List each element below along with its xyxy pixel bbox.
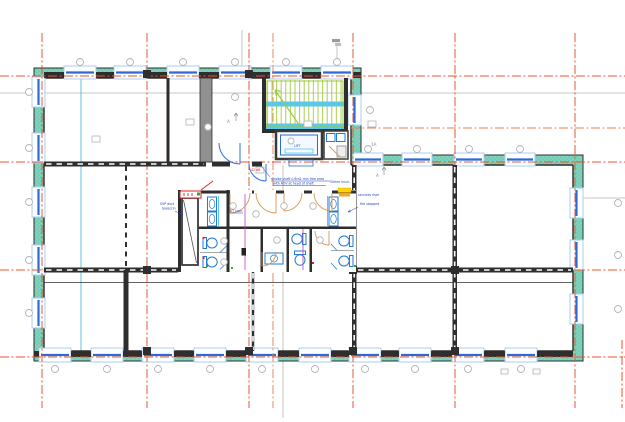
bubble [104,366,111,373]
section-marker-label: A [227,119,230,124]
toilet [339,256,353,267]
annotation-riser-1: services riser [358,193,380,197]
floor-plan-screenshot: A A 1A LIFT 42 dB SVP duct boxed in VT r… [0,0,625,422]
annotation-riser-2: fire stopped [360,202,379,206]
bubble [334,59,341,66]
bubble [52,366,59,373]
bubble [207,366,214,373]
service-fixture [337,134,346,142]
section-flag-icon [332,39,340,42]
annotation-shaft-2: boxed in [162,207,176,211]
room-bubble [232,94,239,101]
toilet [203,238,217,249]
bubble [615,306,622,313]
bubble [517,146,524,153]
bubble [232,59,239,66]
bubble [518,366,525,373]
bubble [465,366,472,373]
room-bubble [317,237,324,244]
toilet [292,234,306,245]
service-fixture [327,134,336,142]
annotation-vt: VT riser [230,209,243,213]
bubble [180,59,187,66]
section-marker-label: A [376,173,379,178]
indicator-green [197,193,200,196]
bubble [615,252,622,259]
stair-wall [344,78,348,133]
ref-tag [368,121,376,127]
room-bubble [205,124,212,131]
stair-section-ref: 1A [371,142,377,147]
highlight-orange [339,193,350,197]
bubble [155,366,162,373]
bubble [26,257,33,264]
ref-tag [533,369,540,374]
bubble [127,59,134,66]
room-bubble [253,211,260,218]
section-flag-icon [335,43,341,46]
bubble [414,146,421,153]
service-wall [200,78,212,162]
bubble [615,200,622,207]
stair-landing [266,102,344,107]
lift-label: LIFT [294,144,300,148]
bubble [466,146,473,153]
bubble [283,59,290,66]
window-col-right [348,95,583,324]
bubble [26,199,33,206]
annotation-red-note: 42 dB [251,168,260,172]
lift-core [276,131,348,166]
red-leader [201,181,213,190]
room-bubble [221,238,228,245]
lift-lobby-mat [289,160,313,166]
bubble [77,59,84,66]
bubble [362,366,369,373]
highlight-yellow [338,188,351,193]
annotation-lobby-1: smoke shaft 0.6m2 min free area [271,177,324,181]
wall [212,162,230,167]
bubble [259,366,266,373]
room-bubble [274,237,281,244]
toilet [339,236,353,247]
ref-tag [92,136,100,142]
bubble [26,89,33,96]
floor-plan-canvas: A A 1A LIFT 42 dB SVP duct boxed in VT r… [0,0,625,422]
room-bubble [221,259,228,266]
ref-tag [186,119,194,125]
duct-solid [242,248,247,256]
room-bubble [310,203,317,210]
room-bubble [281,203,288,210]
bubble [312,366,319,373]
bubble [412,366,419,373]
section-marker-arrow [382,167,386,175]
bubble [26,145,33,152]
stair-wall [262,78,266,133]
annotation-shaft-1: SVP duct [160,202,175,206]
wall [252,162,262,167]
partition [124,270,129,351]
ref-tag [304,121,312,127]
bubble [367,107,374,114]
annotation-insul: 50mm insul. [330,180,350,184]
partition [167,78,170,162]
section-marker-arrow [234,113,238,121]
toilet [295,251,306,265]
door-swing-blue [219,143,240,164]
bubble [26,310,33,317]
annotation-lobby-2: with AOV at head of shaft [273,182,315,186]
toilet [203,257,217,268]
ref-tag [501,369,508,374]
